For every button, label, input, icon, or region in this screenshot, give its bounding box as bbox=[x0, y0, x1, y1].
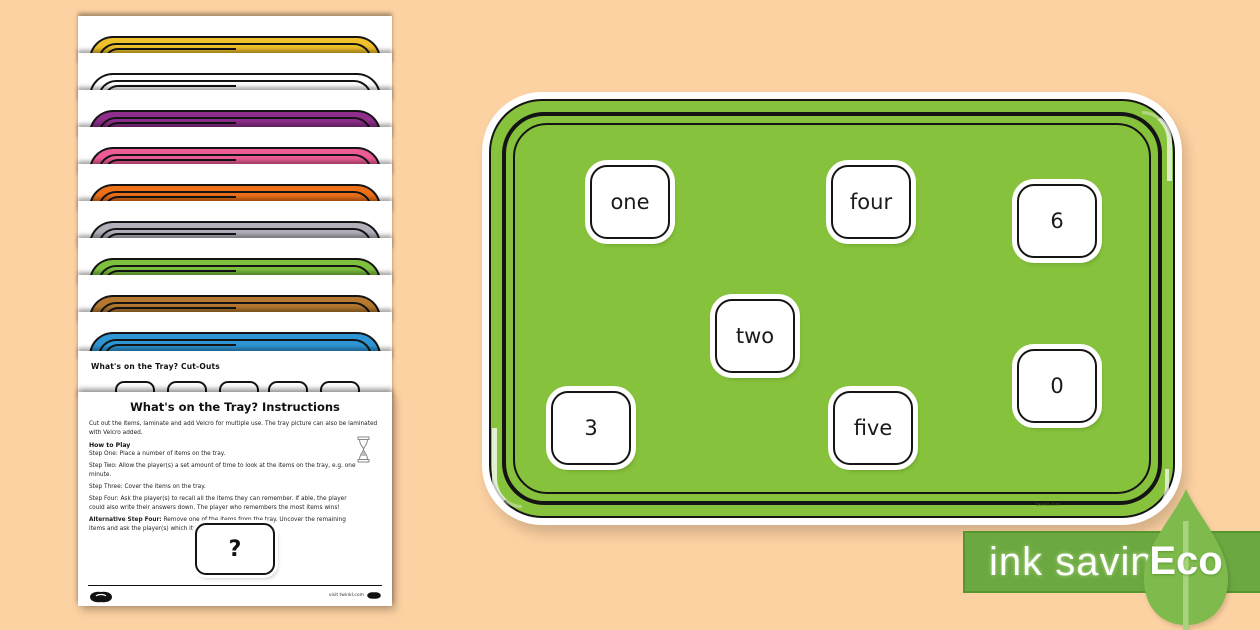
tray-card-6: 6 bbox=[1017, 184, 1097, 258]
tray-card-two: two bbox=[715, 299, 795, 373]
cutouts-title: What's on the Tray? Cut-Outs bbox=[91, 362, 220, 371]
instructions-intro: Cut out the items, laminate and add Velc… bbox=[89, 420, 381, 438]
footer-credit: visit twinkl.com bbox=[329, 591, 382, 600]
tray-card-five: five bbox=[833, 391, 913, 465]
how-to-play-heading: How to Play bbox=[89, 442, 130, 449]
step-three: Step Three: Cover the items on the tray. bbox=[89, 483, 362, 492]
tray-card-one: one bbox=[590, 165, 670, 239]
step-four: Step Four: Ask the player(s) to recall a… bbox=[89, 495, 362, 512]
twinkl-logo-icon bbox=[366, 591, 382, 600]
tray-card-four: four bbox=[831, 165, 911, 239]
eco-label: Eco bbox=[1128, 539, 1244, 584]
page-stack: What's on the Tray? Cut-Outs What's on t… bbox=[78, 0, 392, 630]
step-one: Step One: Place a number of items on the… bbox=[89, 450, 362, 459]
tray-watermark: twinkl.com bbox=[1036, 503, 1060, 508]
hourglass-icon bbox=[357, 436, 370, 463]
instructions-title: What's on the Tray? Instructions bbox=[78, 400, 392, 414]
twinkl-logo-icon bbox=[88, 590, 114, 604]
tray-card-3: 3 bbox=[551, 391, 631, 465]
question-mark-card: ? bbox=[195, 523, 275, 575]
visit-twinkl-text: visit twinkl.com bbox=[329, 593, 364, 598]
tray-card-0: 0 bbox=[1017, 349, 1097, 423]
resource-preview: What's on the Tray? Cut-Outs What's on t… bbox=[0, 0, 1260, 630]
footer-divider bbox=[88, 585, 382, 586]
step-two: Step Two: Allow the player(s) a set amou… bbox=[89, 462, 362, 479]
instructions-page: What's on the Tray? Instructions Cut out… bbox=[78, 392, 392, 606]
